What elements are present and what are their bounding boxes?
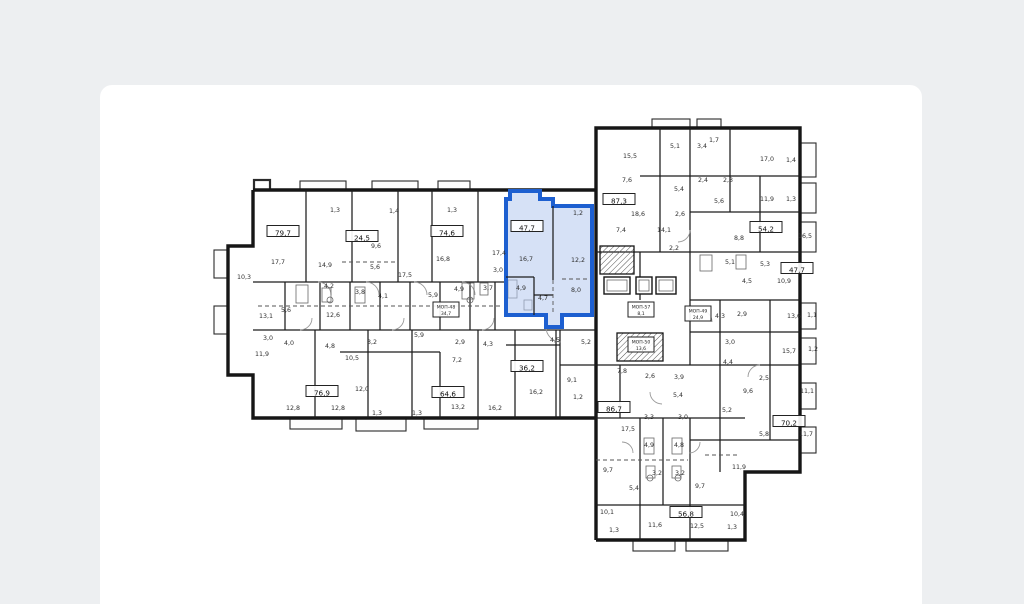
svg-text:47,7: 47,7 <box>519 224 535 233</box>
svg-text:64,6: 64,6 <box>440 390 456 399</box>
room-area-label: 11,1 <box>800 388 814 395</box>
room-area-label: 1,3 <box>727 524 737 531</box>
room-area-label: 5,6 <box>714 198 724 205</box>
room-area-label: 16,2 <box>488 405 502 412</box>
apartment-area-badge: 64,6 <box>432 387 464 399</box>
room-area-label: 10,3 <box>237 274 251 281</box>
room-area-label: 12,8 <box>286 405 300 412</box>
room-area-label: 13,2 <box>451 404 465 411</box>
room-area-label: 1,2 <box>808 346 818 353</box>
svg-text:МОП-57: МОП-57 <box>632 305 651 311</box>
room-area-label: 3,2 <box>675 470 685 477</box>
room-area-label: 3,0 <box>725 339 735 346</box>
svg-text:79,7: 79,7 <box>275 229 291 238</box>
svg-text:МОП-50: МОП-50 <box>632 340 651 346</box>
room-area-label: 4,7 <box>538 295 548 302</box>
room-area-label: 17,4 <box>492 250 506 257</box>
apartment-area-badge: 76,9 <box>306 386 338 398</box>
common-area-badge: МОП-578,1 <box>628 302 654 317</box>
room-area-label: 9,7 <box>603 467 613 474</box>
room-area-label: 3,3 <box>644 414 654 421</box>
room-area-label: 4,9 <box>644 442 654 449</box>
room-area-label: 5,6 <box>370 264 380 271</box>
room-area-label: 4,4 <box>723 359 733 366</box>
svg-text:13,6: 13,6 <box>636 346 646 352</box>
room-area-label: 3,9 <box>674 374 684 381</box>
apartment-area-badge: 79,7 <box>267 226 299 238</box>
room-area-label: 4,3 <box>715 313 725 320</box>
room-area-label: 1,2 <box>573 210 583 217</box>
elevators <box>604 277 676 294</box>
room-area-label: 1,3 <box>372 410 382 417</box>
room-area-label: 9,6 <box>743 388 753 395</box>
room-area-label: 2,6 <box>675 211 685 218</box>
room-area-label: 15,5 <box>623 153 637 160</box>
svg-text:МОП-48: МОП-48 <box>437 305 456 311</box>
svg-text:34,7: 34,7 <box>441 311 451 317</box>
room-area-label: 17,7 <box>271 259 285 266</box>
room-area-label: 11,6 <box>648 522 662 529</box>
room-area-label: 16,5 <box>798 233 812 240</box>
room-area-label: 12,2 <box>571 257 585 264</box>
room-area-label: 1,4 <box>389 208 399 215</box>
room-area-label: 12,6 <box>326 312 340 319</box>
room-area-label: 5,9 <box>428 292 438 299</box>
room-area-label: 1,3 <box>447 207 457 214</box>
svg-text:МОП-49: МОП-49 <box>689 309 708 315</box>
room-area-label: 10,9 <box>777 278 791 285</box>
room-area-label: 5,1 <box>725 259 735 266</box>
room-area-label: 14,9 <box>318 262 332 269</box>
apartment-area-badge: 87,3 <box>603 194 635 206</box>
svg-text:24,9: 24,9 <box>693 315 703 321</box>
room-area-label: 3,7 <box>483 285 493 292</box>
room-area-label: 2,5 <box>759 375 769 382</box>
room-area-label: 11,7 <box>799 431 813 438</box>
room-area-label: 11,9 <box>760 196 774 203</box>
room-area-label: 3,2 <box>367 339 377 346</box>
apartment-area-badge: 86,7 <box>598 402 630 414</box>
apartment-area-badge: 56,8 <box>670 507 702 519</box>
room-area-label: 14,1 <box>657 227 671 234</box>
room-area-label: 16,7 <box>519 256 533 263</box>
room-area-label: 12,0 <box>355 386 369 393</box>
room-area-label: 12,8 <box>331 405 345 412</box>
room-area-label: 5,2 <box>581 339 591 346</box>
svg-text:87,3: 87,3 <box>611 197 627 206</box>
room-area-label: 1,3 <box>330 207 340 214</box>
room-area-label: 4,5 <box>550 337 560 344</box>
svg-text:86,7: 86,7 <box>606 405 622 414</box>
room-area-label: 7,8 <box>617 368 627 375</box>
common-area-badge: МОП-4834,7 <box>433 302 459 317</box>
apartment-area-badge: 70,2 <box>773 416 805 428</box>
room-area-label: 7,4 <box>616 227 626 234</box>
room-area-label: 2,3 <box>723 177 733 184</box>
room-area-label: 17,5 <box>621 426 635 433</box>
room-area-label: 9,1 <box>567 377 577 384</box>
room-area-label: 5,1 <box>670 143 680 150</box>
room-area-label: 11,9 <box>255 351 269 358</box>
room-area-label: 4,2 <box>324 283 334 290</box>
svg-text:74,6: 74,6 <box>439 229 455 238</box>
room-area-label: 5,3 <box>760 261 770 268</box>
room-area-label: 1,3 <box>609 527 619 534</box>
room-area-label: 15,7 <box>782 348 796 355</box>
room-area-label: 1,7 <box>709 137 719 144</box>
room-area-label: 16,8 <box>436 256 450 263</box>
room-area-label: 13,1 <box>259 313 273 320</box>
room-area-label: 2,6 <box>645 373 655 380</box>
room-area-label: 17,0 <box>760 156 774 163</box>
apartment-area-badge: 24,5 <box>346 231 378 243</box>
room-area-label: 4,3 <box>483 341 493 348</box>
room-area-label: 4,8 <box>674 442 684 449</box>
common-area-badge: МОП-4924,9 <box>685 306 711 321</box>
room-area-label: 3,0 <box>678 414 688 421</box>
room-area-label: 7,2 <box>452 357 462 364</box>
room-area-label: 5,4 <box>674 186 684 193</box>
room-area-label: 3,8 <box>355 289 365 296</box>
room-area-label: 3,4 <box>697 143 707 150</box>
room-area-label: 4,8 <box>325 343 335 350</box>
room-area-label: 11,9 <box>732 464 746 471</box>
svg-text:47,7: 47,7 <box>789 266 805 275</box>
room-area-label: 2,4 <box>698 177 708 184</box>
room-area-label: 4,1 <box>378 293 388 300</box>
room-area-label: 16,2 <box>529 389 543 396</box>
svg-text:56,8: 56,8 <box>678 510 694 519</box>
room-area-label: 4,9 <box>516 285 526 292</box>
room-area-label: 5,9 <box>414 332 424 339</box>
room-area-label: 3,0 <box>263 335 273 342</box>
room-area-label: 17,5 <box>398 272 412 279</box>
selected-apartment-area-badge[interactable]: 47,7 <box>511 221 543 233</box>
room-area-label: 1,2 <box>573 394 583 401</box>
room-area-label: 12,5 <box>690 523 704 530</box>
room-area-label: 10,1 <box>600 509 614 516</box>
room-area-label: 2,9 <box>737 311 747 318</box>
svg-text:36,2: 36,2 <box>519 364 535 373</box>
room-area-label: 5,4 <box>673 392 683 399</box>
room-area-label: 9,7 <box>695 483 705 490</box>
floor-plan: 1,31,41,317,714,99,65,617,516,817,43,010… <box>0 0 1024 604</box>
room-area-label: 18,6 <box>631 211 645 218</box>
room-area-label: 13,6 <box>787 313 801 320</box>
room-area-label: 5,4 <box>629 485 639 492</box>
room-area-label: 4,0 <box>284 340 294 347</box>
room-area-label: 1,1 <box>807 312 817 319</box>
room-area-label: 3,2 <box>652 470 662 477</box>
room-area-label: 4,5 <box>742 278 752 285</box>
room-area-label: 5,8 <box>759 431 769 438</box>
svg-text:54,2: 54,2 <box>758 225 774 234</box>
page: { "page": { "background": "#edeff1", "ca… <box>0 0 1024 604</box>
apartment-area-badge: 36,2 <box>511 361 543 373</box>
room-area-label: 8,8 <box>734 235 744 242</box>
room-area-label: 4,9 <box>454 286 464 293</box>
room-area-label: 8,0 <box>571 287 581 294</box>
room-area-label: 10,4 <box>730 511 744 518</box>
apartment-area-badge: 54,2 <box>750 222 782 234</box>
room-area-label: 1,3 <box>786 196 796 203</box>
apartment-area-badge: 74,6 <box>431 226 463 238</box>
svg-text:76,9: 76,9 <box>314 389 330 398</box>
room-area-label: 2,9 <box>455 339 465 346</box>
room-area-label: 1,4 <box>786 157 796 164</box>
apartment-area-badge: 47,7 <box>781 263 813 275</box>
svg-text:70,2: 70,2 <box>781 419 797 428</box>
svg-text:24,5: 24,5 <box>354 234 370 243</box>
room-area-label: 5,6 <box>281 307 291 314</box>
common-area-badge: МОП-5013,6 <box>628 337 654 352</box>
room-area-label: 1,3 <box>412 410 422 417</box>
room-area-label: 2,2 <box>669 245 679 252</box>
room-area-label: 7,6 <box>622 177 632 184</box>
room-area-label: 3,0 <box>493 267 503 274</box>
room-area-label: 10,5 <box>345 355 359 362</box>
svg-text:8,1: 8,1 <box>637 311 644 317</box>
room-area-label: 9,6 <box>371 243 381 250</box>
room-area-label: 5,2 <box>722 407 732 414</box>
